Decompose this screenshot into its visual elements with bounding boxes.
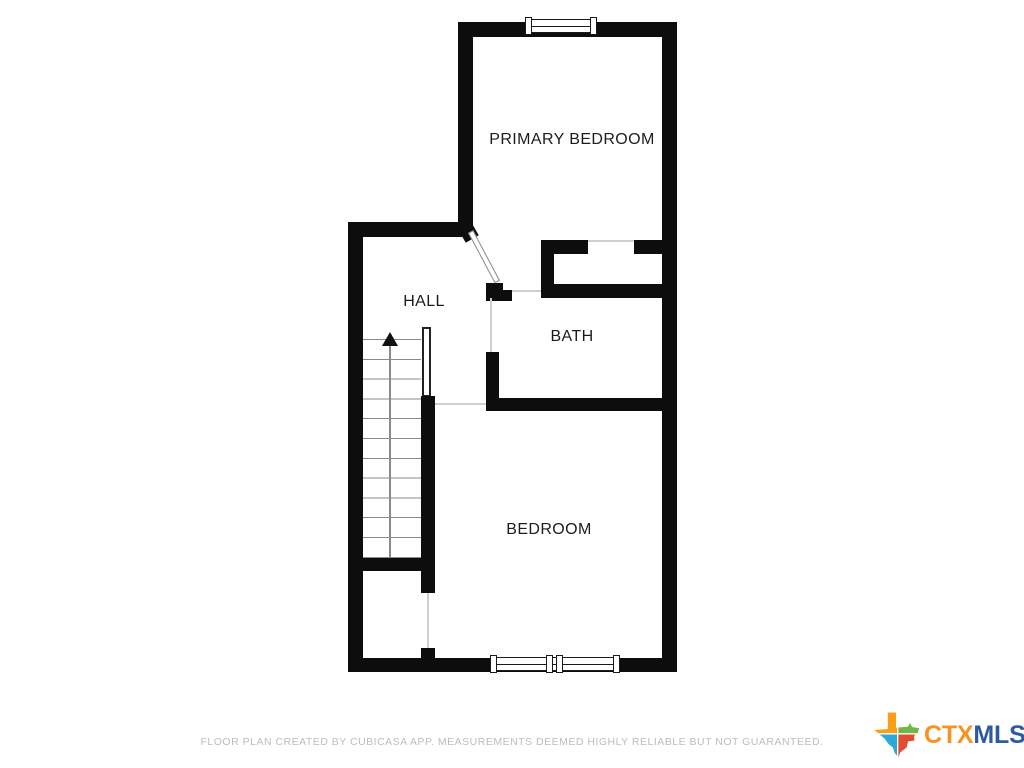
wall-left-exterior	[348, 222, 363, 672]
room-label-bath: BATH	[550, 328, 593, 346]
wall-primary-bedroom-left	[458, 22, 473, 237]
disclaimer-text: FLOOR PLAN CREATED BY CUBICASA APP. MEAS…	[0, 736, 1024, 748]
ctxmls-logo-text: CTXMLS	[924, 712, 1024, 758]
window-top-cap-right	[590, 17, 597, 35]
window-bottom-cap-1	[490, 655, 497, 673]
floor-plan-page: PRIMARY BEDROOM HALL BATH BEDROOM FLOOR …	[0, 0, 1024, 768]
opening-closet-doorway	[588, 240, 634, 242]
wall-bath-bedroom-divider	[486, 398, 677, 411]
window-bottom-cap-4	[613, 655, 620, 673]
opening-bedroom-doorway	[435, 403, 486, 405]
window-bottom-cap-3	[556, 655, 563, 673]
wall-closet-top-right-stub	[634, 240, 662, 254]
logo-mls-text: MLS	[973, 721, 1024, 749]
staircase-up-arrow-icon	[382, 332, 398, 346]
window-bottom-cap-2	[546, 655, 553, 673]
staircase-railing	[422, 327, 431, 397]
room-label-primary-bedroom: PRIMARY BEDROOM	[489, 131, 654, 149]
logo-ctx-text: CTX	[924, 721, 973, 749]
opening-understair-closet-doorway	[427, 593, 429, 648]
window-top-cap-left	[525, 17, 532, 35]
staircase-steps	[363, 339, 421, 558]
wall-right-exterior	[662, 22, 677, 672]
room-label-bedroom: BEDROOM	[506, 521, 591, 539]
texas-state-icon	[872, 712, 922, 758]
wall-hall-top	[348, 222, 473, 237]
wall-understair-closet-stub	[421, 648, 435, 660]
wall-closet-bottom	[541, 284, 667, 298]
wall-closet-top-left-stub	[541, 240, 588, 254]
opening-bath-doorway	[490, 298, 492, 352]
ctxmls-logo: CTXMLS	[872, 712, 1024, 758]
staircase-walkline	[389, 341, 391, 557]
window-top	[527, 19, 597, 33]
door-leaf	[468, 230, 500, 283]
wall-understair	[363, 558, 435, 571]
room-label-hall: HALL	[403, 293, 445, 311]
opening-bath-top	[512, 290, 541, 292]
